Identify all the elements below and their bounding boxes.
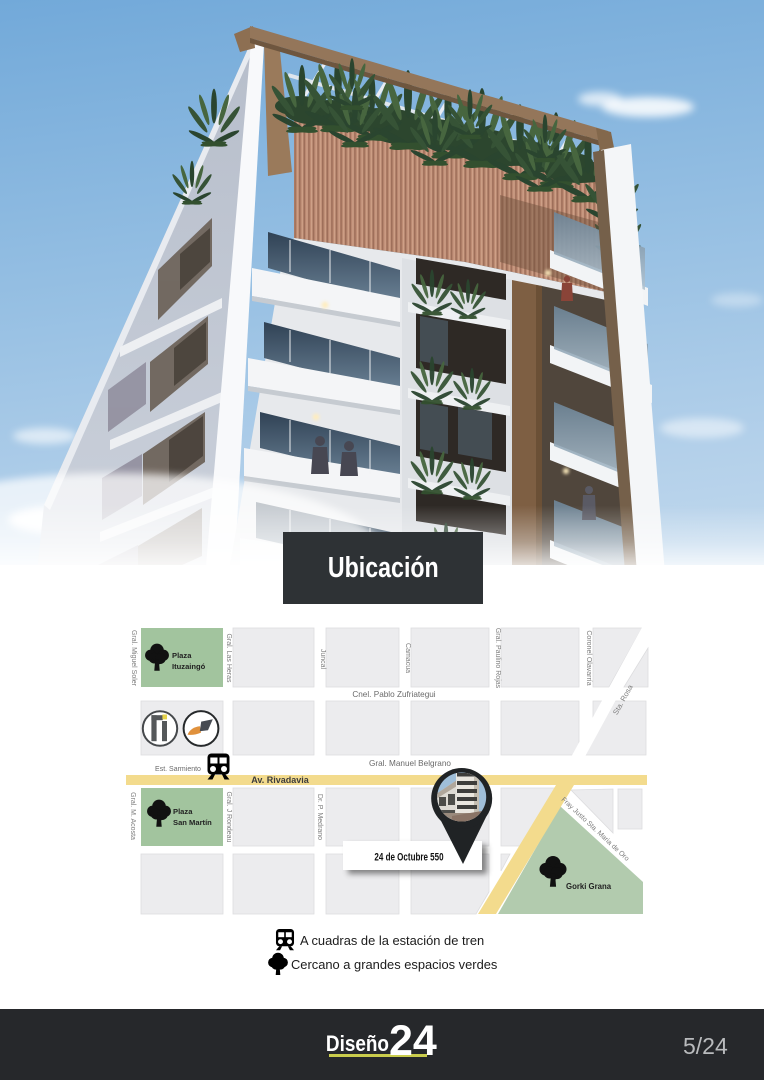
svg-text:Dr. P. Medrano: Dr. P. Medrano — [316, 794, 323, 840]
svg-text:Plaza: Plaza — [172, 651, 192, 660]
svg-text:Gral. Miguel Soler: Gral. Miguel Soler — [130, 630, 137, 687]
svg-text:Coronel Olavarría: Coronel Olavarría — [585, 630, 592, 685]
svg-text:Gral. J Rondeau: Gral. J Rondeau — [225, 792, 232, 843]
svg-text:Ituzaingó: Ituzaingó — [172, 662, 206, 671]
svg-text:Plaza: Plaza — [173, 807, 193, 816]
svg-text:Gral. Paulino Rojas: Gral. Paulino Rojas — [494, 628, 501, 689]
svg-text:Camacua: Camacua — [404, 643, 411, 673]
svg-text:Gral. M. Acosta: Gral. M. Acosta — [129, 792, 136, 840]
svg-text:San Martín: San Martín — [173, 818, 212, 827]
svg-text:Cnel. Pablo Zufriategui: Cnel. Pablo Zufriategui — [352, 690, 435, 699]
svg-text:Juncal: Juncal — [319, 649, 326, 670]
svg-text:24 de Octubre 550: 24 de Octubre 550 — [374, 851, 443, 864]
svg-text:Gral. Manuel Belgrano: Gral. Manuel Belgrano — [369, 759, 451, 768]
svg-text:Gorki Grana: Gorki Grana — [566, 882, 612, 891]
svg-text:Av. Rivadavia: Av. Rivadavia — [251, 775, 310, 785]
svg-text:Est. Sarmiento: Est. Sarmiento — [155, 766, 201, 773]
svg-text:Gral. Las Heras: Gral. Las Heras — [225, 633, 232, 683]
